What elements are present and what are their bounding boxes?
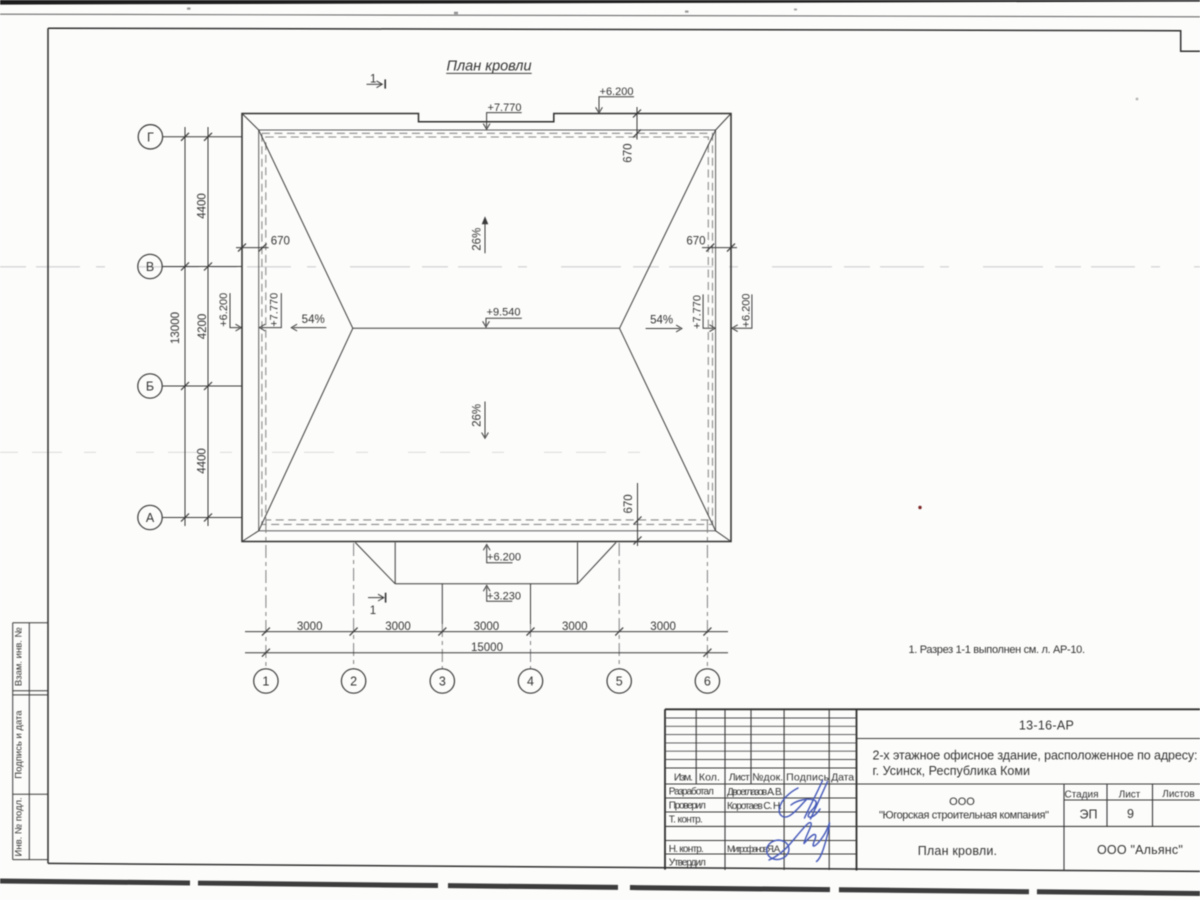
svg-text:Изм.: Изм. (674, 772, 693, 784)
svg-text:Двоеглазов А. В.: Двоеглазов А. В. (727, 787, 783, 798)
svg-text:ЭП: ЭП (1080, 807, 1098, 821)
svg-text:ООО "Альянс": ООО "Альянс" (1097, 843, 1183, 857)
svg-text:ООО: ООО (949, 796, 975, 808)
svg-text:54%: 54% (302, 314, 325, 326)
svg-text:13-16-АР: 13-16-АР (1019, 719, 1074, 733)
svg-text:15000: 15000 (471, 642, 503, 654)
svg-text:+6.200: +6.200 (487, 551, 521, 563)
svg-text:Проверил: Проверил (669, 801, 706, 812)
svg-text:3000: 3000 (562, 621, 588, 633)
svg-text:В: В (146, 260, 154, 274)
svg-text:Разработал: Разработал (669, 786, 714, 798)
svg-text:План кровли: План кровли (447, 58, 533, 75)
svg-text:4200: 4200 (197, 314, 209, 340)
svg-text:+6.200: +6.200 (218, 293, 230, 327)
svg-text:13000: 13000 (170, 312, 182, 344)
svg-text:"Югорская строительная компани: "Югорская строительная компания" (879, 809, 1049, 821)
svg-text:1. Разрез 1-1 выполнен см. л.: 1. Разрез 1-1 выполнен см. л. АР-10. (909, 644, 1086, 656)
svg-text:3: 3 (439, 675, 446, 689)
svg-text:План кровли.: План кровли. (918, 844, 997, 858)
svg-text:Стадия: Стадия (1065, 789, 1099, 800)
svg-text:670: 670 (623, 494, 635, 513)
svg-text:26%: 26% (471, 228, 483, 251)
svg-text:г. Усинск, Республика Коми: г. Усинск, Республика Коми (873, 764, 1031, 778)
svg-text:Н. контр.: Н. контр. (669, 844, 704, 855)
svg-text:Митрофанов Я. А.: Митрофанов Я. А. (727, 844, 781, 855)
svg-text:Кол.: Кол. (699, 772, 720, 784)
svg-text:Подпись: Подпись (786, 772, 830, 784)
svg-text:3000: 3000 (474, 621, 500, 633)
svg-text:3000: 3000 (385, 621, 411, 633)
svg-text:Г: Г (147, 130, 154, 144)
svg-text:+7.770: +7.770 (269, 293, 281, 327)
svg-text:9: 9 (1127, 807, 1134, 821)
svg-text:Лист: Лист (1119, 789, 1141, 800)
svg-text:54%: 54% (650, 314, 673, 326)
svg-text:4400: 4400 (196, 448, 208, 474)
svg-text:2: 2 (350, 675, 357, 689)
svg-text:Коротаев С. Н.: Коротаев С. Н. (727, 801, 782, 812)
svg-text:Взам. инв. №: Взам. инв. № (14, 627, 25, 686)
svg-text:Листов: Листов (1162, 789, 1195, 800)
svg-text:Инв. № подл.: Инв. № подл. (14, 797, 25, 856)
svg-text:1: 1 (262, 675, 269, 689)
svg-text:6: 6 (704, 675, 711, 689)
svg-text:Дата: Дата (831, 772, 854, 784)
svg-text:670: 670 (271, 236, 290, 248)
svg-text:5: 5 (616, 675, 623, 689)
svg-text:Утвердил: Утвердил (669, 857, 706, 868)
svg-text:670: 670 (686, 236, 705, 248)
svg-text:Б: Б (146, 380, 154, 394)
svg-text:№док.: №док. (752, 772, 783, 784)
svg-text:4400: 4400 (196, 193, 208, 219)
svg-text:Подпись и дата: Подпись и дата (14, 710, 25, 779)
svg-text:1: 1 (370, 605, 376, 617)
svg-text:3000: 3000 (650, 621, 676, 633)
svg-text:Лист: Лист (729, 772, 750, 784)
svg-text:3000: 3000 (297, 621, 323, 633)
svg-text:+7.770: +7.770 (692, 295, 704, 329)
svg-text:1: 1 (370, 74, 376, 86)
svg-text:4: 4 (527, 675, 534, 689)
svg-text:26%: 26% (471, 404, 483, 427)
svg-text:+9.540: +9.540 (487, 306, 521, 318)
svg-text:+6.200: +6.200 (741, 294, 753, 328)
svg-text:Т. контр.: Т. контр. (669, 815, 703, 826)
svg-text:А: А (146, 511, 155, 525)
svg-text:670: 670 (623, 144, 635, 163)
svg-text:2-х этажное офисное здание, ра: 2-х этажное офисное здание, расположенно… (873, 749, 1198, 763)
